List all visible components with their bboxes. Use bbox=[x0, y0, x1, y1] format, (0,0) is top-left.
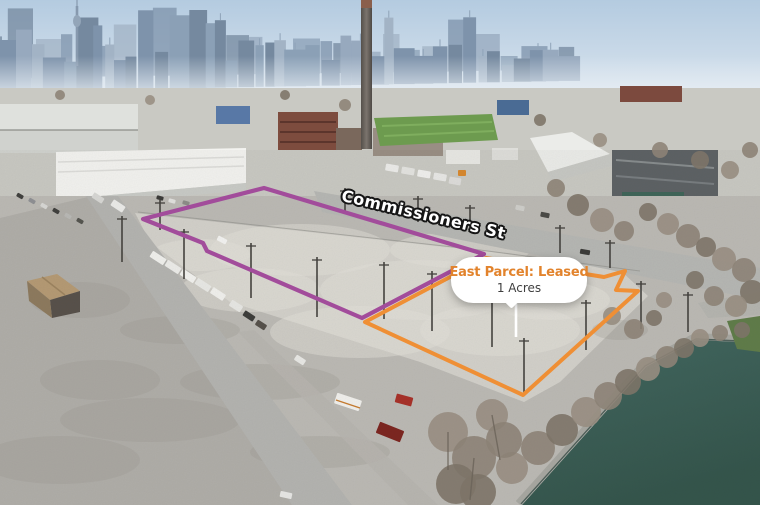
east-parcel-callout: East Parcel: Leased 1 Acres bbox=[451, 257, 587, 303]
aerial-photo: Commissioners St East Parcel: Leased 1 A… bbox=[0, 0, 760, 505]
aerial-photo-canvas bbox=[0, 0, 760, 505]
smokestack bbox=[361, 0, 372, 149]
callout-subtitle: 1 Acres bbox=[497, 281, 541, 295]
callout-title: East Parcel: Leased bbox=[449, 265, 588, 281]
